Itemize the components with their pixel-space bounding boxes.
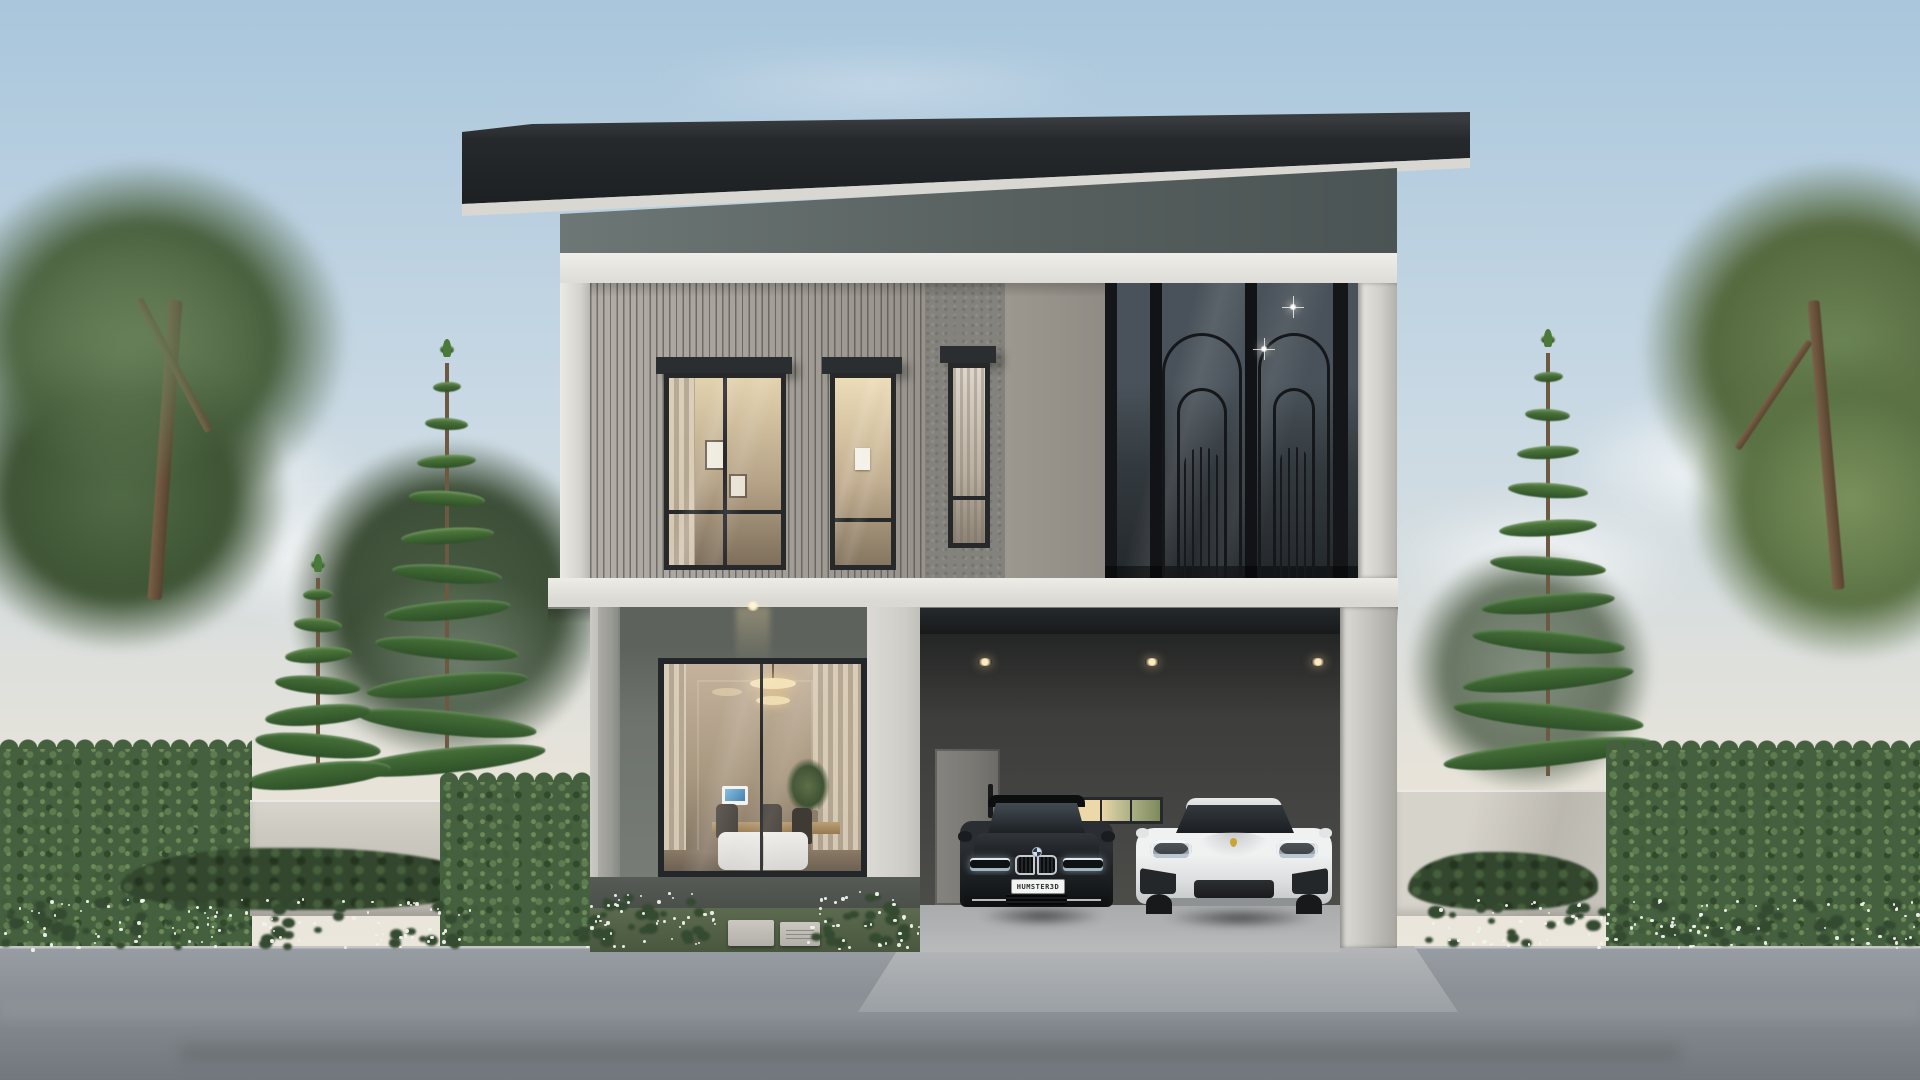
flower-foliage — [1736, 920, 1744, 926]
flower-blossom — [1439, 908, 1442, 911]
flower-blossom — [1634, 923, 1636, 925]
flower-foliage — [274, 906, 281, 912]
flower-blossom — [620, 910, 623, 913]
exterior-render-scene: HUMSTER3D — [0, 0, 1920, 1080]
flower-blossom — [1546, 939, 1548, 941]
flower-blossom — [107, 905, 110, 908]
flower-foliage — [843, 913, 852, 921]
flower-blossom — [1432, 922, 1435, 925]
flower-blossom — [1793, 899, 1796, 902]
flower-blossom — [917, 932, 919, 934]
flower-blossom — [1706, 926, 1709, 929]
flower-blossom — [1827, 903, 1830, 906]
flower-blossom — [910, 924, 913, 927]
flower-blossom — [893, 919, 897, 923]
flower-blossom — [68, 904, 71, 907]
flower-foliage — [1616, 904, 1629, 915]
flower-blossom — [1672, 917, 1675, 920]
flower-foliage — [826, 918, 833, 924]
flower-blossom — [1650, 919, 1653, 922]
flower-foliage — [32, 909, 46, 920]
flower-blossom — [188, 910, 190, 912]
flower-blossom — [375, 934, 378, 937]
flower-blossom — [1607, 913, 1609, 915]
flower-blossom — [1777, 908, 1779, 910]
flower-blossom — [836, 924, 840, 928]
flower-foliage — [880, 936, 893, 946]
flower-blossom — [50, 900, 54, 904]
flower-blossom — [342, 900, 345, 903]
flower-blossom — [1588, 933, 1591, 936]
flower-blossom — [404, 934, 408, 938]
flower-blossom — [606, 921, 609, 924]
flower-foliage — [1488, 918, 1495, 924]
flower-foliage — [237, 922, 245, 929]
flower-blossom — [1548, 912, 1550, 914]
flower-foliage — [1449, 912, 1457, 918]
flower-blossom — [297, 901, 300, 904]
flower-blossom — [212, 926, 214, 928]
flower-blossom — [1895, 941, 1898, 944]
flower-blossom — [1896, 947, 1898, 949]
flower-blossom — [1692, 945, 1694, 947]
flower-blossom — [214, 945, 217, 948]
flower-blossom — [1866, 928, 1869, 931]
flower-blossom — [262, 922, 265, 925]
flower-blossom — [906, 946, 908, 948]
flower-blossom — [1507, 944, 1510, 947]
flower-blossom — [1600, 916, 1604, 920]
flower-blossom — [687, 916, 689, 918]
flower-blossom — [613, 945, 617, 949]
flower-blossom — [172, 927, 175, 930]
flower-bed-layer — [0, 0, 1920, 1080]
flower-blossom — [415, 902, 419, 906]
flower-foliage — [444, 914, 456, 924]
flower-blossom — [214, 915, 217, 918]
flower-blossom — [834, 901, 837, 904]
flower-blossom — [1878, 935, 1882, 939]
flower-blossom — [376, 943, 379, 946]
flower-blossom — [1490, 943, 1493, 946]
flower-blossom — [298, 939, 300, 941]
flower-blossom — [241, 899, 243, 901]
flower-blossom — [43, 927, 46, 930]
flower-blossom — [663, 920, 666, 923]
flower-blossom — [119, 928, 122, 931]
flower-blossom — [201, 941, 203, 943]
flower-blossom — [838, 948, 840, 950]
flower-blossom — [682, 921, 685, 924]
flower-blossom — [610, 932, 613, 935]
flower-blossom — [1605, 937, 1609, 941]
flower-blossom — [810, 926, 813, 929]
flower-blossom — [622, 945, 625, 948]
flower-blossom — [138, 935, 141, 938]
flower-blossom — [266, 899, 269, 902]
flower-blossom — [1505, 904, 1508, 907]
flower-foliage — [1425, 937, 1433, 943]
flower-blossom — [1736, 928, 1739, 931]
flower-blossom — [196, 926, 199, 929]
flower-blossom — [140, 899, 144, 903]
flower-blossom — [892, 903, 896, 907]
flower-foliage — [1808, 905, 1818, 913]
flower-foliage — [35, 901, 46, 909]
flower-blossom — [590, 905, 593, 908]
flower-blossom — [469, 909, 472, 912]
flower-blossom — [1457, 939, 1460, 942]
flower-blossom — [229, 914, 232, 917]
flower-blossom — [824, 920, 827, 923]
flower-blossom — [1862, 902, 1864, 904]
flower-blossom — [599, 920, 601, 922]
flower-blossom — [1893, 937, 1895, 939]
flower-blossom — [1640, 916, 1643, 919]
flower-foliage — [333, 912, 345, 921]
flower-blossom — [859, 891, 861, 893]
flower-blossom — [1706, 904, 1708, 906]
flower-blossom — [1700, 913, 1702, 915]
flower-blossom — [399, 946, 401, 948]
flower-blossom — [643, 940, 646, 943]
flower-foliage — [1884, 921, 1896, 931]
flower-blossom — [1477, 899, 1480, 902]
flower-blossom — [1571, 915, 1574, 918]
flower-blossom — [640, 895, 642, 897]
flower-blossom — [712, 918, 715, 921]
flower-blossom — [875, 892, 879, 896]
flower-blossom — [618, 899, 620, 901]
flower-blossom — [380, 939, 382, 941]
flower-blossom — [442, 932, 445, 935]
flower-blossom — [196, 906, 199, 909]
flower-foliage — [283, 943, 292, 950]
flower-foliage — [660, 911, 667, 917]
flower-blossom — [897, 943, 901, 947]
flower-blossom — [1704, 934, 1707, 937]
flower-blossom — [1866, 942, 1870, 946]
flower-blossom — [1867, 909, 1870, 912]
flower-blossom — [1678, 946, 1681, 949]
flower-blossom — [614, 894, 617, 897]
flower-blossom — [1736, 900, 1739, 903]
flower-blossom — [86, 900, 88, 902]
flower-foliage — [436, 901, 443, 907]
flower-blossom — [671, 938, 673, 940]
flower-blossom — [269, 926, 272, 929]
flower-blossom — [80, 910, 83, 913]
flower-blossom — [819, 913, 821, 915]
flower-blossom — [61, 903, 63, 905]
flower-blossom — [430, 908, 433, 911]
flower-foliage — [94, 898, 108, 909]
flower-foliage — [1546, 921, 1556, 929]
flower-blossom — [442, 940, 446, 944]
flower-blossom — [710, 911, 713, 914]
flower-foliage — [105, 937, 112, 943]
flower-blossom — [1597, 946, 1601, 950]
flower-blossom — [270, 939, 274, 943]
flower-blossom — [824, 897, 827, 900]
flower-blossom — [698, 942, 700, 944]
flower-blossom — [97, 935, 101, 939]
flower-blossom — [1911, 901, 1914, 904]
flower-foliage — [1773, 912, 1783, 920]
flower-blossom — [245, 911, 249, 915]
flower-blossom — [377, 922, 380, 925]
flower-blossom — [819, 907, 823, 911]
flower-blossom — [1472, 942, 1476, 946]
flower-foliage — [1631, 916, 1639, 922]
flower-blossom — [1519, 920, 1523, 924]
flower-blossom — [344, 946, 347, 949]
flower-blossom — [679, 926, 681, 928]
flower-blossom — [405, 929, 409, 933]
flower-blossom — [50, 943, 53, 946]
flower-blossom — [627, 901, 630, 904]
flower-foliage — [826, 937, 838, 947]
flower-blossom — [1835, 936, 1839, 940]
flower-foliage — [1, 939, 11, 947]
flower-blossom — [382, 933, 384, 935]
flower-blossom — [94, 942, 97, 945]
flower-blossom — [1633, 901, 1635, 903]
flower-blossom — [1661, 935, 1664, 938]
flower-blossom — [807, 941, 810, 944]
flower-foliage — [869, 933, 882, 943]
flower-blossom — [657, 920, 659, 922]
flower-blossom — [1477, 930, 1480, 933]
flower-foliage — [285, 920, 292, 926]
flower-blossom — [31, 948, 34, 951]
flower-foliage — [1586, 920, 1601, 932]
flower-blossom — [820, 898, 824, 902]
flower-blossom — [313, 922, 316, 925]
flower-blossom — [1764, 941, 1767, 944]
flower-blossom — [1614, 938, 1618, 942]
flower-blossom — [657, 900, 661, 904]
flower-foliage — [1755, 935, 1764, 942]
flower-foliage — [462, 914, 471, 921]
flower-blossom — [458, 938, 462, 942]
flower-blossom — [31, 910, 33, 912]
flower-bed — [806, 891, 926, 951]
flower-foliage — [600, 912, 608, 918]
flower-foliage — [136, 912, 148, 921]
flower-blossom — [209, 906, 212, 909]
flower-blossom — [1674, 924, 1676, 926]
flower-bed — [0, 898, 475, 952]
flower-blossom — [43, 933, 47, 937]
flower-foliage — [578, 926, 591, 936]
flower-foliage — [823, 925, 833, 933]
flower-blossom — [352, 916, 356, 920]
flower-blossom — [119, 921, 122, 924]
flower-foliage — [121, 898, 132, 907]
flower-foliage — [683, 936, 694, 945]
flower-blossom — [410, 904, 412, 906]
flower-blossom — [892, 899, 894, 901]
flower-blossom — [1724, 909, 1727, 912]
flower-bed — [1424, 898, 1920, 950]
flower-blossom — [1701, 905, 1703, 907]
flower-blossom — [218, 929, 221, 932]
flower-blossom — [1528, 943, 1530, 945]
flower-blossom — [1916, 913, 1920, 917]
flower-blossom — [211, 936, 213, 938]
flower-blossom — [19, 907, 22, 910]
flower-foliage — [628, 924, 635, 930]
flower-foliage — [130, 924, 144, 936]
flower-blossom — [183, 929, 185, 931]
flower-blossom — [1913, 926, 1915, 928]
flower-blossom — [298, 921, 301, 924]
flower-blossom — [714, 923, 716, 925]
flower-blossom — [1904, 915, 1906, 917]
flower-blossom — [878, 944, 882, 948]
flower-blossom — [428, 928, 431, 931]
flower-blossom — [399, 936, 402, 939]
flower-blossom — [207, 923, 210, 926]
flower-blossom — [1689, 929, 1691, 931]
flower-blossom — [586, 946, 589, 949]
flower-foliage — [116, 942, 126, 950]
flower-blossom — [399, 904, 401, 906]
flower-blossom — [302, 898, 305, 901]
flower-blossom — [1448, 939, 1451, 942]
flower-blossom — [878, 911, 881, 914]
flower-bed — [575, 891, 717, 951]
flower-blossom — [1600, 942, 1602, 944]
flower-foliage — [1521, 939, 1532, 948]
flower-blossom — [27, 921, 29, 923]
flower-blossom — [590, 926, 593, 929]
flower-foliage — [1778, 931, 1789, 939]
flower-blossom — [1824, 927, 1826, 929]
flower-foliage — [174, 944, 182, 950]
flower-blossom — [367, 911, 370, 914]
flower-blossom — [207, 917, 209, 919]
flower-blossom — [1492, 912, 1494, 914]
flower-blossom — [371, 901, 374, 904]
flower-foliage — [1817, 934, 1830, 945]
flower-blossom — [1674, 934, 1676, 936]
flower-blossom — [188, 940, 191, 943]
flower-foliage — [82, 928, 90, 934]
flower-foliage — [1699, 916, 1710, 924]
flower-blossom — [4, 932, 7, 935]
flower-foliage — [1476, 905, 1486, 913]
flower-blossom — [703, 913, 707, 917]
flower-blossom — [1533, 901, 1536, 904]
flower-blossom — [673, 917, 676, 920]
flower-blossom — [1482, 940, 1486, 944]
flower-blossom — [1606, 922, 1609, 925]
flower-blossom — [845, 896, 848, 899]
flower-blossom — [832, 925, 834, 927]
flower-blossom — [695, 943, 697, 945]
flower-blossom — [1851, 938, 1854, 941]
flower-blossom — [656, 922, 659, 925]
flower-foliage — [228, 925, 236, 931]
flower-blossom — [595, 920, 598, 923]
flower-blossom — [1478, 927, 1481, 930]
flower-blossom — [458, 914, 460, 916]
flower-foliage — [50, 922, 65, 934]
flower-blossom — [848, 946, 851, 949]
flower-foliage — [1744, 924, 1757, 934]
flower-blossom — [900, 939, 903, 942]
flower-blossom — [1575, 917, 1578, 920]
flower-foliage — [692, 926, 704, 936]
flower-blossom — [672, 897, 674, 899]
flower-blossom — [918, 926, 920, 928]
flower-blossom — [411, 936, 414, 939]
flower-blossom — [1539, 942, 1542, 945]
flower-blossom — [1905, 938, 1907, 940]
flower-blossom — [1720, 927, 1723, 930]
flower-foliage — [1678, 913, 1691, 923]
flower-blossom — [1755, 905, 1757, 907]
flower-foliage — [174, 900, 188, 911]
flower-blossom — [1539, 907, 1541, 909]
flower-foliage — [686, 898, 696, 906]
flower-blossom — [1448, 927, 1451, 930]
flower-blossom — [691, 893, 693, 895]
flower-foliage — [865, 911, 876, 920]
flower-blossom — [642, 912, 645, 915]
flower-foliage — [811, 933, 821, 941]
flower-blossom — [1630, 926, 1633, 929]
flower-foliage — [1720, 938, 1729, 945]
flower-blossom — [438, 911, 442, 915]
flower-blossom — [134, 940, 137, 943]
flower-blossom — [1557, 921, 1560, 924]
flower-blossom — [77, 946, 80, 949]
flower-blossom — [1502, 939, 1505, 942]
flower-blossom — [668, 892, 671, 895]
flower-blossom — [903, 917, 906, 920]
flower-foliage — [165, 920, 172, 926]
flower-blossom — [1655, 932, 1658, 935]
flower-foliage — [1829, 921, 1839, 929]
flower-foliage — [314, 927, 322, 933]
flower-blossom — [1730, 944, 1732, 946]
flower-blossom — [54, 914, 56, 916]
flower-blossom — [1697, 930, 1701, 934]
